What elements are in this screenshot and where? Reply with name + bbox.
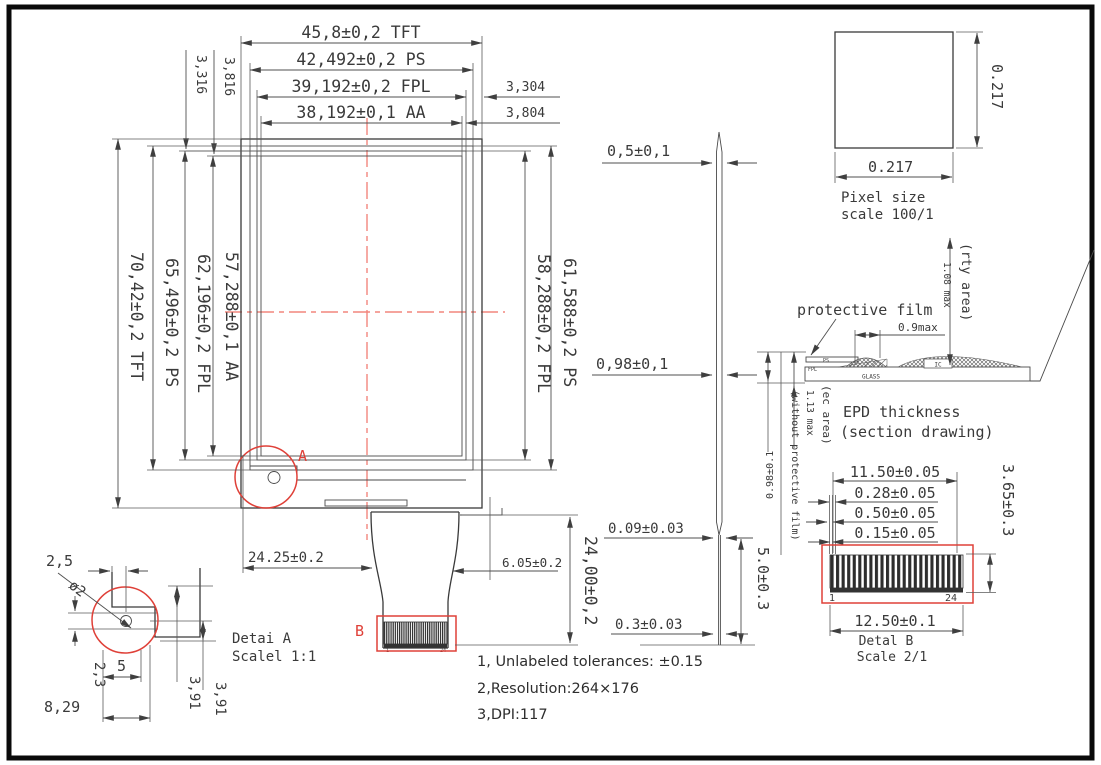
dim-b-height: 3.65±0.3 [999,464,1017,536]
dim-a-edge-to-hole: 2,5 [46,552,73,570]
detail-b-pin24: 24 [945,593,957,604]
dim-side-stiffener: 5.0±0.3 [754,547,772,610]
rty-max-dim: 1.08 max [941,262,952,308]
epd-mechanical-drawing: 1 24 A B 45,8±0,2 TFT 42,492±0,2 PS 39,1… [0,0,1101,765]
pixel-caption-1: Pixel size [841,190,925,206]
fpl-outline [257,151,466,460]
dim-a-h1: 3,91 [186,676,202,710]
notes: 1, Unlabeled tolerances: ±0.15 2,Resolut… [477,654,703,723]
dim-width-tft: 45,8±0,2 TFT [301,23,420,42]
dim-tail-length: 24,00±0,2 [581,536,600,625]
glass-label: GLASS [862,374,880,381]
left-dimensions: 70,42±0,2 TFT 65,496±0,2 PS 62,196±0,2 F… [112,139,261,508]
detail-a-caption-1: Detai A [232,631,292,647]
detail-b-pin1: 1 [829,593,835,604]
protective-film-label: protective film [797,301,932,319]
dim-tail-offset: 24.25±0.2 [248,550,324,566]
connector-band [384,644,447,648]
dim-side-top: 0,5±0,1 [607,142,670,160]
dim-width-fpl: 39,192±0,2 FPL [291,77,430,96]
section-break-line [1030,250,1094,381]
note-line-1: 1, Unlabeled tolerances: ±0.15 [477,654,703,670]
detail-b-caption-2: Scale 2/1 [857,650,927,665]
tft-outline [241,139,482,508]
ps-outline [250,146,473,470]
dim-offset-right-aa: 3,804 [506,106,545,121]
corner-notch [250,466,466,480]
dim-side-bottom: 0.3±0.03 [615,617,682,633]
dim-height-aa: 57,288±0,1 AA [222,252,241,381]
ps-layer-label: PS [823,358,829,364]
detail-b-caption-1: Detal B [859,634,914,649]
dim-b-total-width: 12.50±0.1 [854,612,935,630]
side-profile [717,132,723,535]
dim-a-width: 5 [117,657,126,675]
dim-b-pitch-total: 11.50±0.05 [850,463,940,481]
pixel-size-view: 0.217 0.217 Pixel size scale 100/1 [835,32,1006,223]
detail-b-view: 11.50±0.05 0.28±0.05 0.50±0.05 0.15±0.05… [806,463,1017,665]
note-line-2: 2,Resolution:264×176 [477,681,639,697]
section-caption-2: (section drawing) [840,423,994,441]
dim-a-h2: 3,91 [212,682,228,716]
encapsulation-lump-2 [898,357,1022,368]
without-film-dim: 0.98±0.1 [765,451,776,499]
detail-b-band [830,588,963,593]
dim-pixel-width: 0.217 [868,158,913,176]
top-dimensions: 45,8±0,2 TFT 42,492±0,2 PS 39,192±0,2 FP… [186,23,560,156]
dim-offset-left-fpl: 3,316 [193,55,208,94]
dim-height-tft: 70,42±0,2 TFT [127,252,146,381]
dim-b-pin-offset: 0.15±0.05 [854,524,935,542]
dim-a-base: 8,29 [44,698,80,716]
side-view: 0,5±0,1 0,98±0,1 0.09±0.03 5.0±0.3 0.3±0… [592,132,772,645]
detail-a-marker: A [298,447,307,465]
dim-height-ps: 65,496±0,2 PS [162,258,181,387]
fpl-layer-label: FPL [808,367,817,373]
detail-b-pins [830,555,963,588]
dim-width-aa: 38,192±0,1 AA [296,103,425,122]
dim-width-ps: 42,492±0,2 PS [296,50,425,69]
dim-b-pin-width: 0.28±0.05 [854,484,935,502]
stiffener-bar [325,500,407,506]
detail-a-red-circle [92,587,158,653]
dim-side-mid: 0,98±0,1 [596,355,668,373]
detail-a-view: 2,5 ø2 2,3 5 3,91 3,91 8,29 Detai A Scal… [44,552,316,722]
without-film-label: (without protective film) [789,390,800,541]
dim-offset-right-fpl: 3,304 [506,80,545,95]
dim-ic-offset: 0.9max [898,321,938,334]
encapsulation-lump-1 [846,358,886,367]
dim-height-ps-right: 61,588±0,2 PS [560,258,579,387]
detail-b-marker: B [355,622,364,640]
dim-b-pin-gap: 0.50±0.05 [854,504,935,522]
film-layer [806,357,858,362]
dim-a-offset-v: 2,3 [91,662,107,687]
pixel-caption-2: scale 100/1 [841,207,934,223]
right-dimensions: 58,288±0,2 FPL 61,588±0,2 PS [466,146,579,470]
side-fpc [719,535,721,645]
detail-a-caption-2: Scalel 1:1 [232,649,316,665]
engineering-drawing-page: 1 24 A B 45,8±0,2 TFT 42,492±0,2 PS 39,1… [0,0,1101,765]
glass-bar [805,367,1030,381]
ic-label: IC [934,362,942,369]
glass-ledge [460,508,502,515]
dim-side-fpc: 0.09±0.03 [608,521,684,537]
dim-height-fpl-right: 58,288±0,2 FPL [534,254,553,393]
aa-outline [261,156,462,456]
dim-pixel-height: 0.217 [988,64,1006,109]
pixel-square [835,32,953,148]
front-view: 1 24 A B [225,118,505,654]
rty-area-label: (rty area) [958,243,973,321]
dim-offset-left-aa: 3,816 [221,57,236,96]
note-line-3: 3,DPI:117 [477,707,548,723]
registration-hole [268,472,280,484]
connector-pins [384,622,447,644]
ec-area-label: (ec area) [820,385,833,445]
ec-max-dim: 1.13 max [804,390,815,436]
detail-a-circle [235,446,297,508]
dim-tail-side: 6.05±0.2 [502,555,562,570]
section-caption-1: EPD thickness [843,403,960,421]
dim-height-fpl: 62,196±0,2 FPL [194,254,213,393]
